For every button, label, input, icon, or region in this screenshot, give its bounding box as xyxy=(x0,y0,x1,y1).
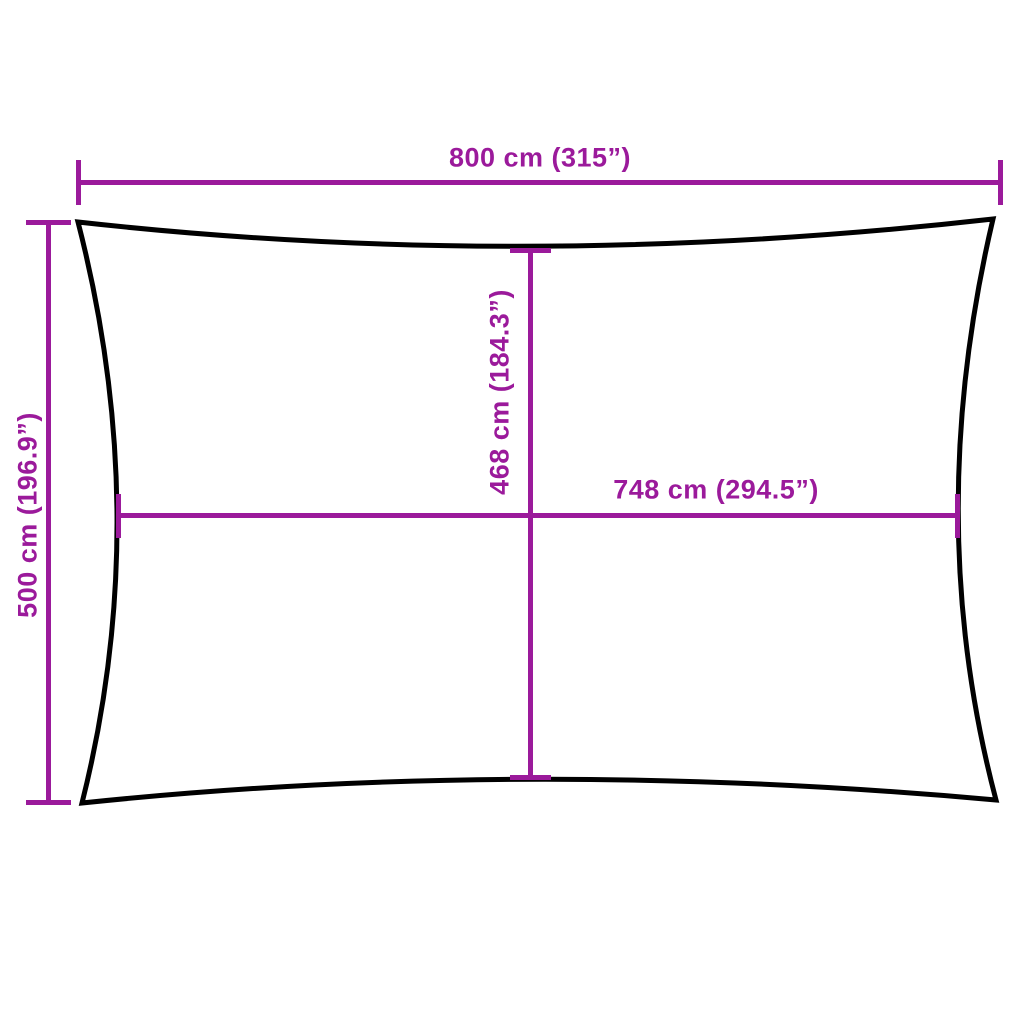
inner-height-label: 468 cm (184.3”) xyxy=(487,289,514,495)
outer-width-label: 800 cm (315”) xyxy=(449,145,631,172)
outer-width-tick-left xyxy=(76,160,81,205)
inner-width-tick-right xyxy=(955,494,960,538)
outer-width-tick-right xyxy=(998,160,1003,205)
sail-shape-path xyxy=(78,219,996,803)
inner-height-tick-bottom xyxy=(510,775,551,780)
inner-width-label: 748 cm (294.5”) xyxy=(613,477,819,504)
inner-width-tick-left xyxy=(116,494,121,538)
dimension-diagram: 800 cm (315”) 500 cm (196.9”) 468 cm (18… xyxy=(0,0,1024,1024)
inner-height-tick-top xyxy=(510,248,551,253)
outer-height-line xyxy=(46,222,51,805)
inner-width-line xyxy=(118,513,958,518)
outer-height-label: 500 cm (196.9”) xyxy=(15,412,42,618)
outer-width-line xyxy=(78,180,1003,185)
outer-height-tick-top xyxy=(26,220,71,225)
outer-height-tick-bottom xyxy=(26,800,71,805)
